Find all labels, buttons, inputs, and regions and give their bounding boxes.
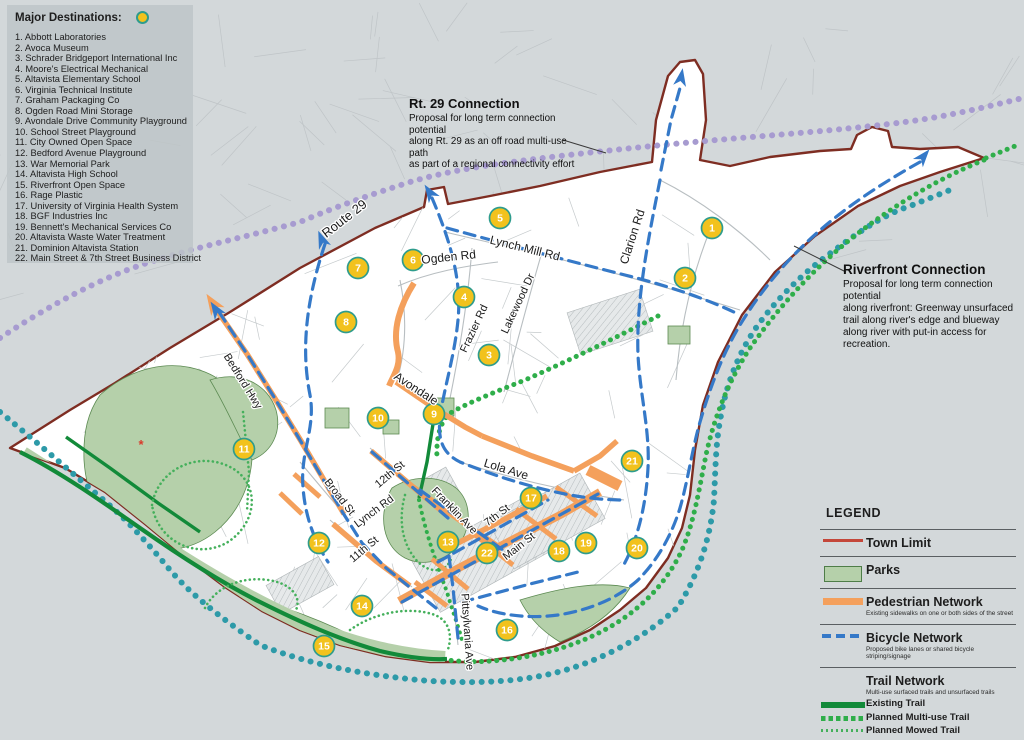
svg-text:12: 12: [313, 538, 325, 550]
svg-text:16: 16: [501, 625, 513, 637]
legend-label: Planned Mowed Trail: [866, 726, 960, 737]
riverfront-connection-callout: Riverfront Connection Proposal for long …: [843, 263, 1024, 351]
map-marker-19: 19: [576, 533, 597, 554]
destination-item: 19. Bennett's Mechanical Services Co: [15, 222, 185, 233]
legend-row-multiuse-trail: Planned Multi-use Trail: [820, 713, 1016, 724]
planned-mowed-swatch: [820, 726, 866, 732]
major-destinations-panel: Major Destinations: 1. Abbott Laboratori…: [7, 5, 193, 263]
destination-item: 18. BGF Industries Inc: [15, 211, 185, 222]
destination-item: 9. Avondale Drive Community Playground: [15, 116, 185, 127]
destination-item: 13. War Memorial Park: [15, 159, 185, 170]
legend-label: Bicycle Network: [866, 631, 1016, 645]
destination-item: 11. City Owned Open Space: [15, 137, 185, 148]
map-marker-15: 15: [314, 636, 335, 657]
svg-text:20: 20: [631, 543, 643, 555]
map-marker-11: 11: [234, 439, 255, 460]
map-marker-3: 3: [479, 345, 500, 366]
destination-item: 8. Ogden Road Mini Storage: [15, 106, 185, 117]
major-destinations-list: 1. Abbott Laboratories2. Avoca Museum3. …: [15, 32, 185, 264]
legend-row-town-limit: Town Limit: [820, 529, 1016, 556]
destination-item: 21. Dominion Altavista Station: [15, 243, 185, 254]
svg-text:13: 13: [442, 537, 454, 549]
destination-item: 6. Virginia Technical Institute: [15, 85, 185, 96]
parks-swatch: [820, 563, 866, 582]
map-marker-13: 13: [438, 532, 459, 553]
town-limit-swatch: [820, 536, 866, 542]
map-marker-20: 20: [627, 538, 648, 559]
map-marker-16: 16: [497, 620, 518, 641]
svg-text:22: 22: [481, 548, 493, 560]
destination-item: 17. University of Virginia Health System: [15, 201, 185, 212]
legend-row-existing-trail: Existing Trail: [820, 699, 1016, 710]
svg-text:5: 5: [497, 213, 503, 225]
legend-label: Trail Network: [866, 674, 1016, 688]
destination-item: 1. Abbott Laboratories: [15, 32, 185, 43]
riverfront-callout-title: Riverfront Connection: [843, 263, 1024, 277]
svg-text:3: 3: [486, 350, 492, 362]
destination-item: 7. Graham Packaging Co: [15, 95, 185, 106]
svg-text:14: 14: [356, 601, 368, 613]
destination-item: 2. Avoca Museum: [15, 43, 185, 54]
map-marker-18: 18: [549, 541, 570, 562]
legend-row-trail: Trail Network Multi-use surfaced trails …: [820, 667, 1016, 740]
destination-item: 14. Altavista High School: [15, 169, 185, 180]
map-marker-5: 5: [490, 208, 511, 229]
map-marker-21: 21: [622, 451, 643, 472]
rt29-callout-title: Rt. 29 Connection: [409, 97, 587, 111]
destination-item: 5. Altavista Elementary School: [15, 74, 185, 85]
map-marker-14: 14: [352, 596, 373, 617]
svg-text:4: 4: [461, 292, 467, 304]
planned-multiuse-swatch: [820, 713, 866, 721]
legend-sublabel: Existing sidewalks on one or both sides …: [866, 610, 1013, 618]
svg-text:8: 8: [343, 317, 349, 329]
legend-label: Parks: [866, 563, 900, 577]
legend-sublabel: Proposed bike lanes or shared bicycle st…: [866, 646, 1016, 661]
destination-item: 3. Schrader Bridgeport International Inc: [15, 53, 185, 64]
map-marker-8: 8: [336, 312, 357, 333]
existing-trail-swatch: [820, 699, 866, 708]
destination-item: 12. Bedford Avenue Playground: [15, 148, 185, 159]
svg-text:7: 7: [355, 263, 361, 275]
rt29-callout-body: Proposal for long term connection potent…: [409, 113, 587, 171]
svg-text:11: 11: [238, 444, 249, 456]
map-marker-7: 7: [348, 258, 369, 279]
svg-text:2: 2: [682, 273, 688, 285]
map-marker-1: 1: [702, 218, 723, 239]
major-destinations-header: Major Destinations:: [15, 11, 185, 24]
map-marker-10: 10: [368, 408, 389, 429]
legend-label: Town Limit: [866, 536, 931, 550]
destination-item: 22. Main Street & 7th Street Business Di…: [15, 253, 185, 264]
destination-item: 15. Riverfront Open Space: [15, 180, 185, 191]
bicycle-swatch: [820, 631, 866, 638]
svg-text:1: 1: [709, 223, 715, 235]
svg-text:6: 6: [410, 255, 416, 267]
legend-label: Planned Multi-use Trail: [866, 713, 969, 724]
svg-text:17: 17: [525, 493, 537, 505]
destination-item: 16. Rage Plastic: [15, 190, 185, 201]
major-destinations-title: Major Destinations:: [15, 12, 122, 24]
map-marker-17: 17: [521, 488, 542, 509]
rt29-connection-callout: Rt. 29 Connection Proposal for long term…: [409, 97, 587, 171]
legend-title: LEGEND: [826, 506, 1016, 520]
legend-panel: LEGEND Town Limit Parks Pedestrian Netwo…: [820, 506, 1016, 740]
svg-text:10: 10: [372, 413, 384, 425]
map-marker-22: 22: [477, 543, 498, 564]
destination-item: 10. School Street Playground: [15, 127, 185, 138]
destination-item: 20. Altavista Waste Water Treatment: [15, 232, 185, 243]
svg-text:15: 15: [318, 641, 330, 653]
map-marker-4: 4: [454, 287, 475, 308]
destination-marker-icon: [136, 11, 149, 24]
legend-row-parks: Parks: [820, 556, 1016, 588]
pedestrian-swatch: [820, 595, 866, 605]
legend-label: Pedestrian Network: [866, 595, 1013, 609]
svg-text:18: 18: [553, 546, 565, 558]
svg-text:21: 21: [626, 456, 638, 468]
svg-text:9: 9: [431, 409, 437, 421]
map-marker-12: 12: [309, 533, 330, 554]
svg-text:19: 19: [580, 538, 592, 550]
map-marker-2: 2: [675, 268, 696, 289]
legend-row-bicycle: Bicycle Network Proposed bike lanes or s…: [820, 624, 1016, 667]
legend-label: Existing Trail: [866, 699, 925, 710]
map-canvas: * 12345678910111213141516171819202122 Ro…: [0, 0, 1024, 740]
legend-sublabel: Multi-use surfaced trails and unsurfaced…: [866, 689, 1016, 697]
riverfront-callout-body: Proposal for long term connection potent…: [843, 279, 1024, 351]
legend-row-mowed-trail: Planned Mowed Trail: [820, 726, 1016, 737]
destination-item: 4. Moore's Electrical Mechanical: [15, 64, 185, 75]
legend-row-pedestrian: Pedestrian Network Existing sidewalks on…: [820, 588, 1016, 624]
